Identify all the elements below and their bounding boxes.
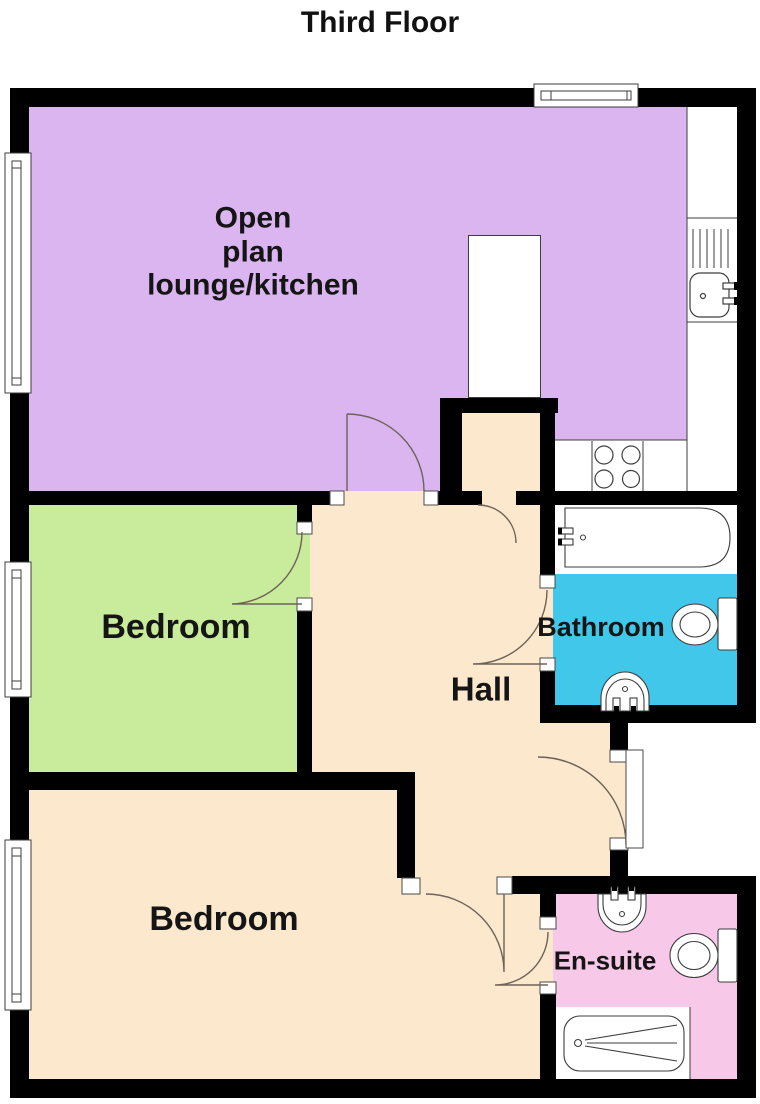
ensuite-tub-area — [556, 1007, 690, 1079]
wall-segment — [297, 505, 312, 522]
wall-segment — [737, 88, 756, 723]
wall-segment — [610, 723, 628, 750]
wall-segment — [737, 876, 756, 1098]
kitchen-island — [468, 235, 541, 398]
wall-segment — [512, 876, 756, 894]
kitchen-counter-right — [687, 107, 737, 491]
room-label-bathroom: Bathroom — [537, 612, 665, 642]
landing-recess — [628, 723, 760, 876]
room-label-bedroom2: Bedroom — [149, 900, 298, 938]
wall-segment — [540, 413, 555, 575]
wall-segment — [440, 398, 558, 413]
wall-segment — [10, 772, 415, 790]
wall-segment — [540, 894, 556, 917]
plan-title: Third Floor — [0, 6, 760, 40]
wall-segment — [440, 398, 462, 505]
wall-segment — [397, 790, 415, 878]
wall-segment — [610, 850, 628, 876]
wall-segment — [10, 88, 29, 1098]
wall-segment — [297, 611, 312, 790]
wall-segment — [10, 1079, 756, 1098]
wall-segment — [540, 705, 756, 723]
wall-segment — [540, 671, 555, 705]
room-label-lounge: Open plan lounge/kitchen — [147, 202, 359, 303]
wall-segment — [10, 88, 756, 107]
room-label-hall: Hall — [451, 672, 512, 709]
wall-segment — [29, 491, 330, 505]
wall-segment — [540, 994, 556, 1079]
kitchen-counter-bottom — [555, 440, 687, 491]
bathroom-tub-area — [554, 505, 738, 574]
room-label-ensuite: En-suite — [554, 946, 657, 975]
floorplan: Third Floor — [0, 0, 760, 1104]
room-label-bedroom1: Bedroom — [101, 608, 250, 646]
